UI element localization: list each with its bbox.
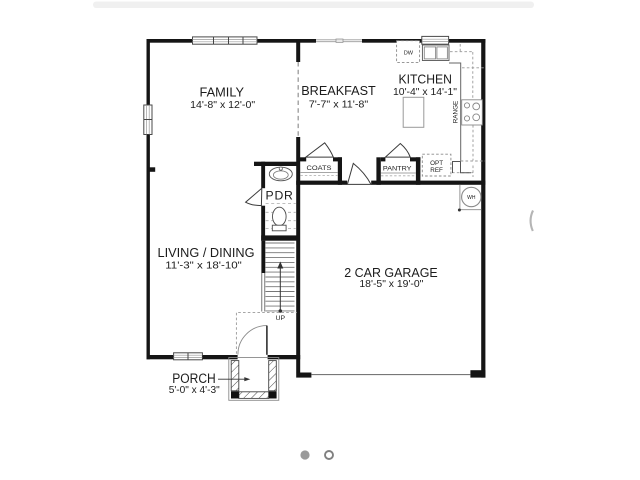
svg-text:PDR: PDR xyxy=(266,189,294,203)
svg-text:DW: DW xyxy=(404,50,414,56)
svg-text:2 CAR GARAGE: 2 CAR GARAGE xyxy=(344,265,438,280)
svg-text:PANTRY: PANTRY xyxy=(383,165,412,172)
svg-text:5'-0" x 4'-3": 5'-0" x 4'-3" xyxy=(169,385,220,396)
svg-text:LIVING / DINING: LIVING / DINING xyxy=(158,245,255,260)
svg-text:UP: UP xyxy=(276,315,286,322)
svg-text:FAMILY: FAMILY xyxy=(200,85,245,100)
svg-text:18'-5" x 19'-0": 18'-5" x 19'-0" xyxy=(359,279,423,290)
svg-text:COATS: COATS xyxy=(307,165,332,172)
svg-text:10'-4" x 14'-1": 10'-4" x 14'-1" xyxy=(393,87,457,98)
svg-text:7'-7" x 11'-8": 7'-7" x 11'-8" xyxy=(309,99,369,110)
svg-text:14'-8" x 12'-0": 14'-8" x 12'-0" xyxy=(190,100,255,111)
svg-text:11'-3" x 18'-10": 11'-3" x 18'-10" xyxy=(165,261,242,272)
svg-text:RANGE: RANGE xyxy=(452,100,459,123)
svg-text:WH: WH xyxy=(467,195,476,201)
svg-text:REF: REF xyxy=(430,167,443,174)
svg-text:KITCHEN: KITCHEN xyxy=(398,72,452,87)
svg-text:BREAKFAST: BREAKFAST xyxy=(301,83,376,98)
